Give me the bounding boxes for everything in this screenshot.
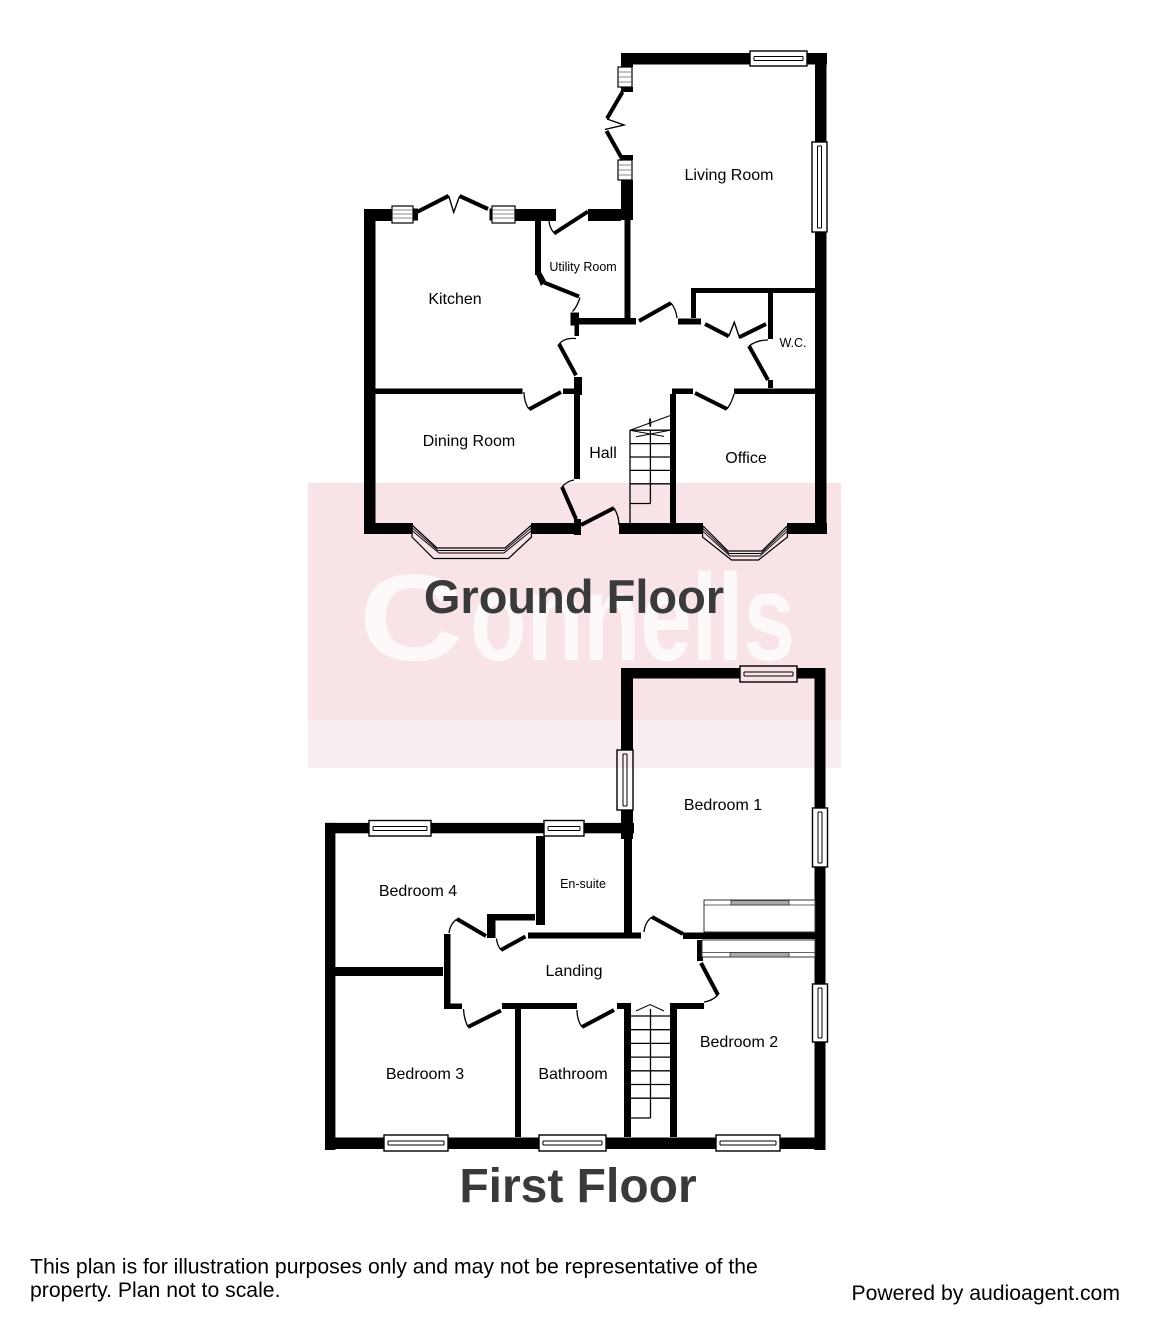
svg-text:Bedroom 1: Bedroom 1 <box>684 797 762 814</box>
svg-text:Dining Room: Dining Room <box>423 433 515 450</box>
svg-text:Living Room: Living Room <box>685 167 774 184</box>
svg-text:Bathroom: Bathroom <box>538 1066 607 1083</box>
svg-text:Bedroom 2: Bedroom 2 <box>700 1034 778 1051</box>
svg-text:This plan is for illustration: This plan is for illustration purposes o… <box>30 1256 758 1279</box>
svg-text:Bedroom 3: Bedroom 3 <box>386 1066 464 1083</box>
svg-text:Bedroom 4: Bedroom 4 <box>379 883 457 900</box>
svg-text:Office: Office <box>725 450 767 467</box>
svg-text:En-suite: En-suite <box>560 877 606 891</box>
svg-text:Powered by audioagent.com: Powered by audioagent.com <box>851 1282 1120 1305</box>
svg-text:First Floor: First Floor <box>459 1160 696 1213</box>
svg-text:Utility Room: Utility Room <box>549 260 616 274</box>
svg-text:property. Plan not to scale.: property. Plan not to scale. <box>30 1279 280 1302</box>
svg-text:Kitchen: Kitchen <box>428 291 481 308</box>
svg-text:Landing: Landing <box>546 963 603 980</box>
svg-text:Ground Floor: Ground Floor <box>424 570 724 623</box>
svg-text:Hall: Hall <box>589 445 617 462</box>
svg-text:W.C.: W.C. <box>779 336 806 350</box>
